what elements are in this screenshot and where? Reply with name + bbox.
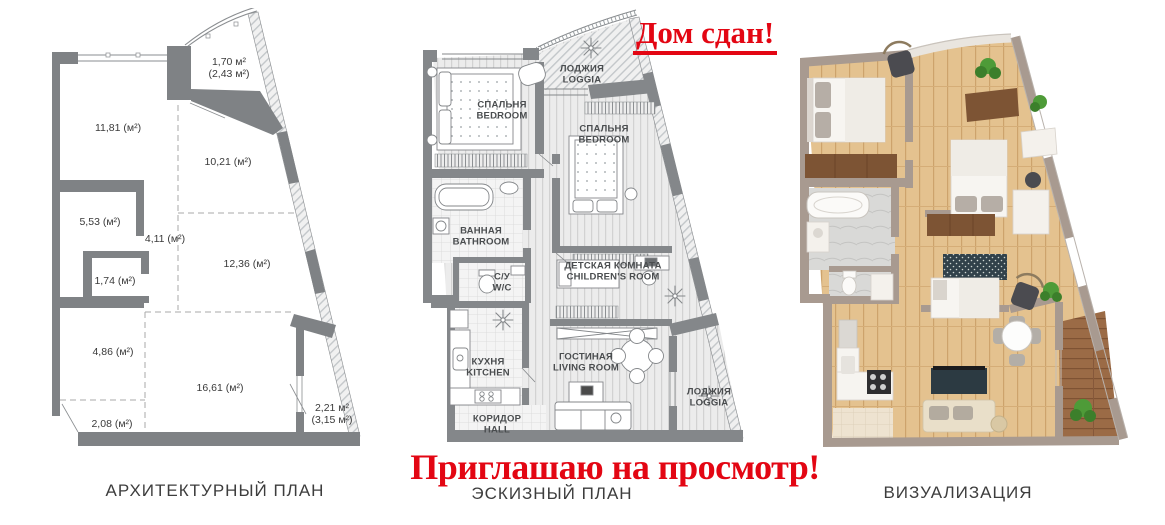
console — [965, 88, 1019, 122]
shower — [871, 274, 893, 300]
room-label-loggia-top: ЛОДЖИЯLOGGIA — [560, 64, 604, 87]
sink — [511, 266, 525, 275]
ottoman — [991, 416, 1007, 432]
room-area-label: 4,86 (м²) — [92, 346, 133, 358]
tv-unit — [931, 368, 987, 394]
bed — [569, 136, 623, 214]
room-area-label: 5,53 (м²) — [79, 216, 120, 228]
plant-icon — [493, 310, 513, 330]
sofa — [923, 400, 995, 432]
caption-visualization: ВИЗУАЛИЗАЦИЯ — [883, 483, 1032, 503]
room-area-label: 4,11 (м²) — [145, 233, 185, 245]
room-area-label: 16,61 (м²) — [197, 382, 244, 394]
room-label-children: ДЕТСКАЯ КОМНАТАCHILDREN'S ROOM — [564, 261, 661, 284]
desk — [1013, 190, 1049, 234]
room-label-hall: КОРИДОРHALL — [473, 414, 521, 437]
bed — [951, 140, 1007, 217]
banner-house-delivered: Дом сдан! — [633, 17, 777, 55]
desk — [1021, 128, 1057, 158]
wardrobe — [927, 214, 995, 236]
plant-icon — [581, 38, 601, 58]
bed — [807, 78, 885, 142]
room-label-kitchen: КУХНЯKITCHEN — [466, 357, 510, 380]
plant-icon — [665, 286, 685, 306]
visualization-render — [793, 28, 1128, 453]
caption-architectural-plan: АРХИТЕКТУРНЫЙ ПЛАН — [106, 481, 325, 501]
bathtub — [435, 184, 493, 210]
room-area-label: 1,70 м² (2,43 м²) — [208, 56, 249, 80]
bathtub — [807, 192, 869, 218]
wardrobe — [556, 306, 618, 318]
room-label-bedroom-1: СПАЛЬНЯBEDROOM — [476, 100, 527, 123]
stool — [611, 413, 621, 423]
room-area-label: 2,08 (м²) — [91, 418, 132, 430]
room-area-label: 10,21 (м²) — [205, 156, 252, 168]
toilet — [842, 271, 856, 295]
room-label-loggia-bottom: ЛОДЖИЯLOGGIA — [687, 387, 731, 410]
room-area-label: 12,36 (м²) — [224, 258, 271, 270]
washing-machine — [433, 218, 449, 234]
room-area-label: 11,81 (м²) — [95, 122, 141, 134]
coffee-table — [569, 382, 603, 402]
flyer-canvas: 11,81 (м²) 10,21 (м²) 5,53 (м²) 4,11 (м²… — [0, 0, 1165, 525]
wardrobe — [585, 102, 655, 114]
room-label-wc: С/УW/C — [492, 272, 511, 295]
room-area-label: 2,21 м² (3,15 м²) — [311, 402, 352, 426]
child-bed — [931, 278, 999, 318]
wardrobe — [435, 154, 527, 167]
banner-invite-viewing: Приглашаю на просмотр! — [410, 446, 820, 488]
chair — [1025, 172, 1041, 188]
sink — [500, 182, 518, 194]
caption-sketch-plan: ЭСКИЗНЫЙ ПЛАН — [471, 484, 632, 504]
room-label-bedroom-2: СПАЛЬНЯBEDROOM — [578, 124, 629, 147]
room-area-label: 1,74 (м²) — [94, 275, 135, 287]
rug — [943, 254, 1007, 280]
room-label-living: ГОСТИНАЯLIVING ROOM — [553, 352, 619, 375]
room-label-bathroom: ВАННАЯBATHROOM — [453, 226, 510, 249]
wardrobe — [805, 154, 897, 178]
